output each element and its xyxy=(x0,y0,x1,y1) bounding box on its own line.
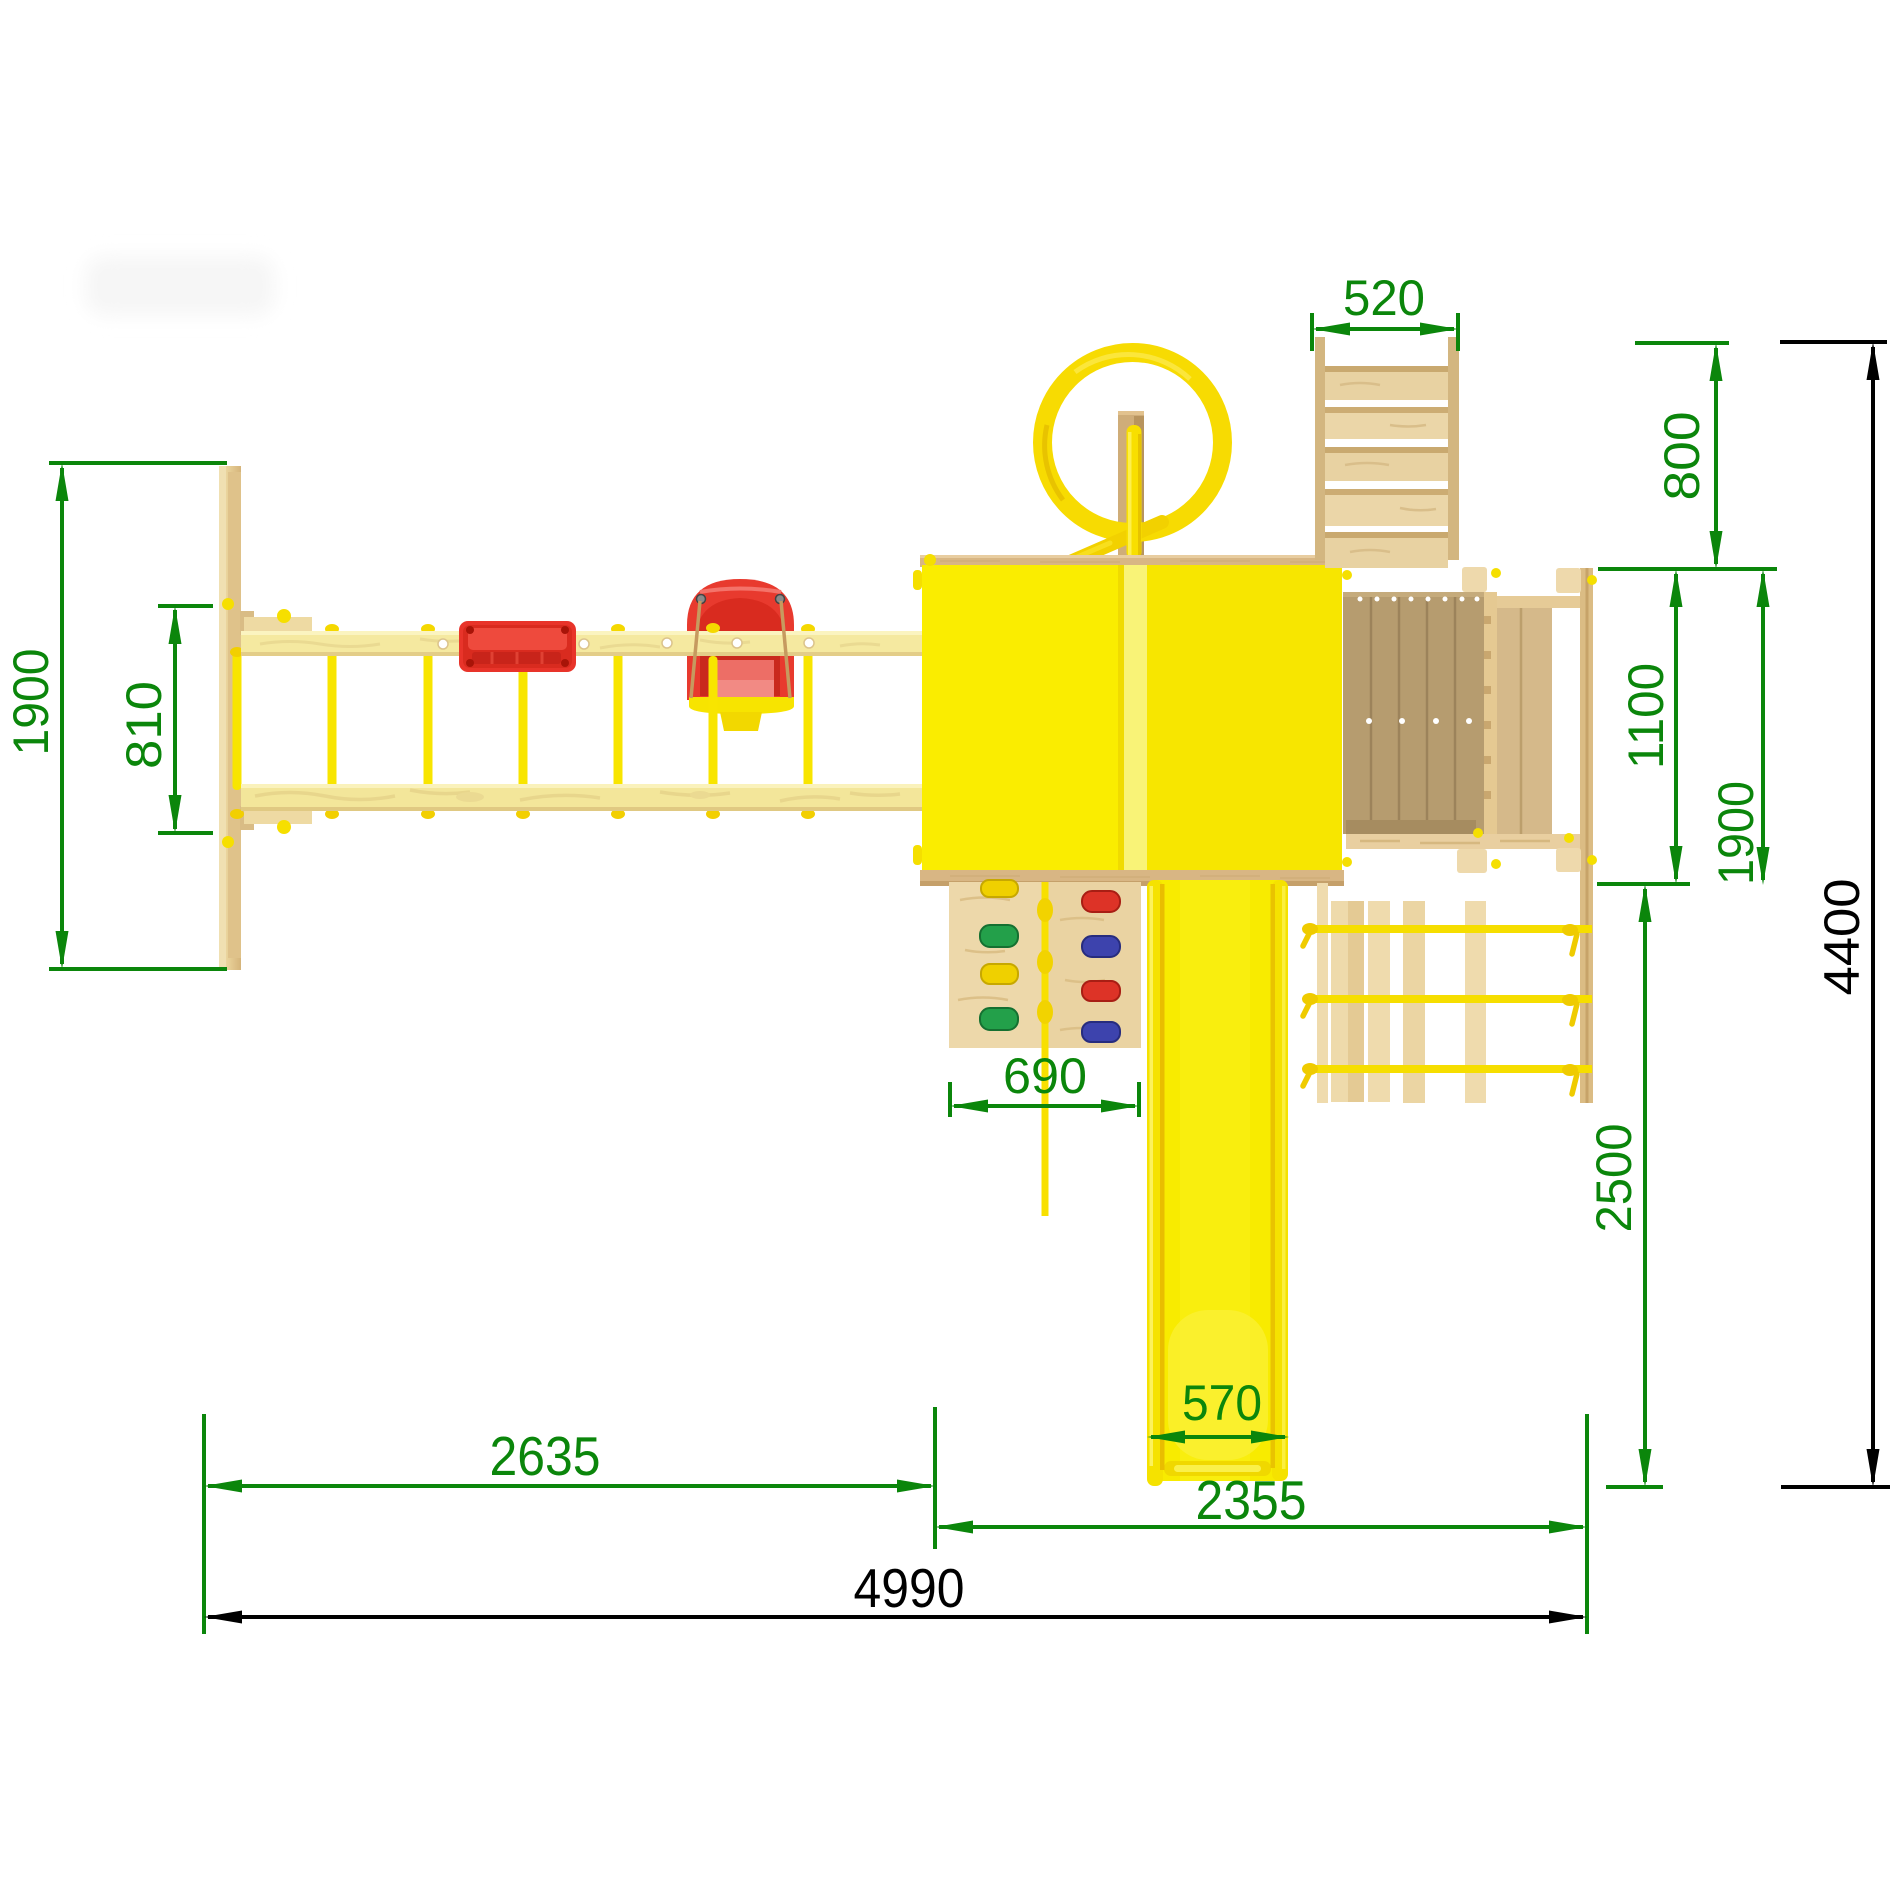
svg-text:4990: 4990 xyxy=(854,1557,965,1619)
svg-text:520: 520 xyxy=(1343,270,1425,326)
svg-text:800: 800 xyxy=(1654,412,1710,501)
svg-text:1900: 1900 xyxy=(1708,781,1764,885)
svg-text:570: 570 xyxy=(1182,1375,1262,1431)
svg-text:1100: 1100 xyxy=(1618,663,1674,769)
svg-text:2355: 2355 xyxy=(1196,1469,1307,1531)
svg-text:690: 690 xyxy=(1003,1048,1087,1104)
svg-text:2500: 2500 xyxy=(1586,1124,1642,1233)
svg-text:810: 810 xyxy=(116,681,172,769)
svg-text:1900: 1900 xyxy=(3,649,59,756)
svg-text:4400: 4400 xyxy=(1814,879,1870,996)
svg-text:2635: 2635 xyxy=(490,1425,601,1487)
